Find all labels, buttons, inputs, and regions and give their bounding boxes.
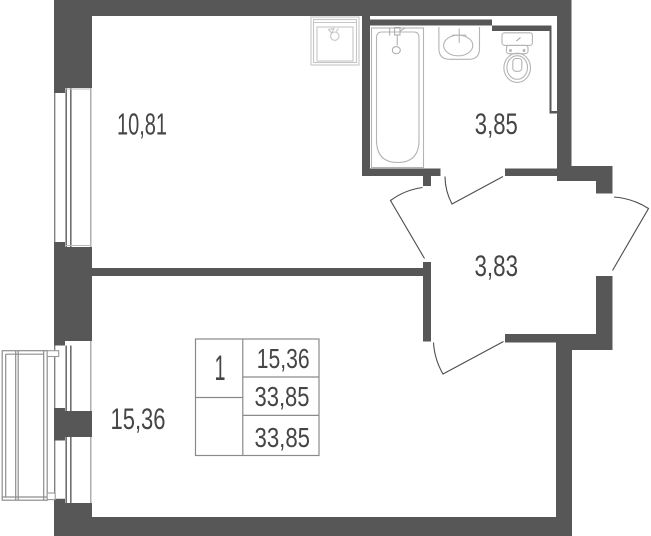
svg-text:33,85: 33,85 [255, 422, 311, 453]
svg-text:15,36: 15,36 [111, 403, 166, 436]
svg-text:3,83: 3,83 [475, 250, 519, 283]
svg-text:10,81: 10,81 [117, 107, 167, 142]
svg-text:1: 1 [215, 349, 226, 388]
svg-text:3,85: 3,85 [475, 108, 518, 141]
svg-text:15,36: 15,36 [257, 343, 310, 374]
svg-text:33,85: 33,85 [255, 381, 310, 412]
